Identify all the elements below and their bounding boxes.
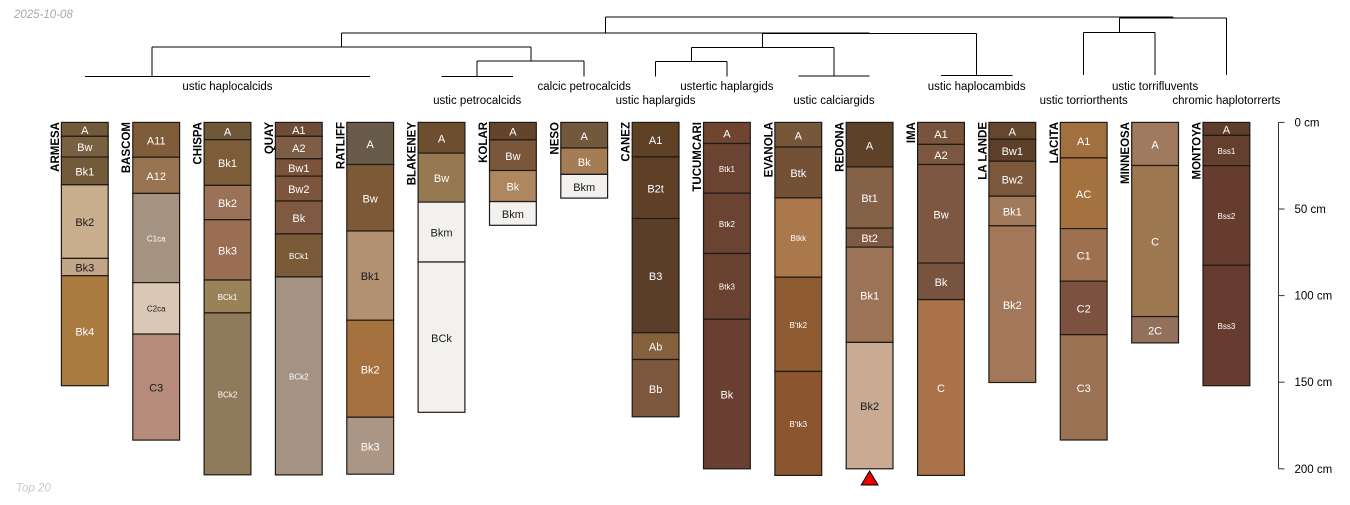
svg-text:calcic petrocalcids: calcic petrocalcids bbox=[538, 81, 632, 93]
svg-text:Bk2: Bk2 bbox=[75, 217, 94, 229]
svg-text:Bk1: Bk1 bbox=[860, 290, 879, 302]
svg-text:Btk: Btk bbox=[790, 168, 806, 180]
svg-text:Bk3: Bk3 bbox=[361, 441, 380, 453]
svg-text:EVANOLA: EVANOLA bbox=[763, 122, 775, 177]
svg-text:MINNEOSA: MINNEOSA bbox=[1120, 122, 1132, 184]
svg-text:200 cm: 200 cm bbox=[1295, 464, 1333, 476]
svg-text:Bt2: Bt2 bbox=[861, 233, 878, 245]
svg-text:Bk1: Bk1 bbox=[361, 271, 380, 283]
svg-text:AC: AC bbox=[1076, 189, 1091, 201]
svg-text:C2: C2 bbox=[1077, 304, 1091, 316]
svg-text:A2: A2 bbox=[292, 143, 305, 155]
svg-text:Bw: Bw bbox=[77, 142, 92, 154]
svg-text:100 cm: 100 cm bbox=[1295, 291, 1333, 303]
svg-text:2025-10-08: 2025-10-08 bbox=[13, 9, 73, 21]
svg-text:Bw2: Bw2 bbox=[288, 184, 309, 196]
svg-text:Bk1: Bk1 bbox=[75, 167, 94, 179]
svg-text:A1: A1 bbox=[1077, 136, 1090, 148]
svg-text:Bk1: Bk1 bbox=[218, 158, 237, 170]
svg-text:BCk2: BCk2 bbox=[289, 372, 309, 381]
svg-text:B3: B3 bbox=[649, 271, 662, 283]
svg-text:Btk1: Btk1 bbox=[719, 165, 736, 174]
svg-text:B'tk2: B'tk2 bbox=[790, 321, 808, 330]
svg-text:Bk3: Bk3 bbox=[75, 263, 94, 275]
svg-text:ustic haplocambids: ustic haplocambids bbox=[928, 81, 1026, 93]
svg-text:A2: A2 bbox=[934, 150, 947, 162]
svg-text:Bk4: Bk4 bbox=[75, 326, 94, 338]
svg-text:0 cm: 0 cm bbox=[1295, 117, 1320, 129]
svg-text:A: A bbox=[581, 131, 589, 143]
svg-text:B'tk3: B'tk3 bbox=[790, 420, 808, 429]
svg-text:BASCOM: BASCOM bbox=[121, 122, 133, 173]
svg-text:MONTOYA: MONTOYA bbox=[1192, 122, 1204, 180]
svg-text:C: C bbox=[1151, 237, 1159, 249]
svg-text:2C: 2C bbox=[1148, 325, 1162, 337]
svg-text:Bw: Bw bbox=[434, 173, 449, 185]
svg-text:Bk: Bk bbox=[506, 182, 519, 194]
svg-text:A: A bbox=[1223, 125, 1231, 137]
svg-text:A11: A11 bbox=[147, 135, 166, 147]
svg-text:C: C bbox=[937, 383, 945, 395]
svg-text:A1: A1 bbox=[292, 125, 305, 137]
svg-text:Btk2: Btk2 bbox=[719, 220, 736, 229]
svg-text:C3: C3 bbox=[1077, 383, 1091, 395]
svg-text:Bk: Bk bbox=[935, 277, 948, 289]
svg-text:REDONA: REDONA bbox=[835, 122, 847, 172]
svg-text:BCk2: BCk2 bbox=[218, 390, 238, 399]
svg-text:B2t: B2t bbox=[647, 183, 664, 195]
svg-text:QUAY: QUAY bbox=[264, 122, 276, 154]
svg-text:Bw: Bw bbox=[505, 151, 520, 163]
svg-text:ustertic haplargids: ustertic haplargids bbox=[680, 81, 774, 93]
svg-text:A1: A1 bbox=[934, 129, 947, 141]
svg-text:50 cm: 50 cm bbox=[1295, 204, 1326, 216]
svg-text:C1: C1 bbox=[1077, 250, 1091, 262]
svg-text:Bk: Bk bbox=[292, 213, 305, 225]
svg-text:A12: A12 bbox=[146, 171, 166, 183]
svg-text:Bss1: Bss1 bbox=[1218, 147, 1236, 156]
svg-text:Top 20: Top 20 bbox=[16, 483, 51, 495]
svg-text:CHISPA: CHISPA bbox=[193, 122, 205, 165]
svg-text:A: A bbox=[866, 140, 874, 152]
svg-text:Bss2: Bss2 bbox=[1218, 212, 1236, 221]
svg-text:Btk3: Btk3 bbox=[719, 283, 736, 292]
svg-text:Bw1: Bw1 bbox=[1002, 146, 1023, 158]
svg-text:BCk1: BCk1 bbox=[218, 293, 238, 302]
svg-text:Bw: Bw bbox=[363, 193, 378, 205]
svg-text:RATLIFF: RATLIFF bbox=[335, 122, 347, 169]
svg-text:ustic torrifluvents: ustic torrifluvents bbox=[1112, 81, 1199, 93]
svg-text:Bb: Bb bbox=[649, 384, 662, 396]
svg-text:Bkm: Bkm bbox=[502, 209, 524, 221]
svg-text:Bk1: Bk1 bbox=[1003, 207, 1022, 219]
svg-text:ustic torriorthents: ustic torriorthents bbox=[1040, 95, 1128, 107]
svg-text:Bk2: Bk2 bbox=[1003, 300, 1022, 312]
svg-text:Bw1: Bw1 bbox=[288, 163, 309, 175]
svg-text:Bw: Bw bbox=[933, 209, 948, 221]
svg-text:ARMESA: ARMESA bbox=[50, 122, 62, 172]
svg-text:IMA: IMA bbox=[906, 122, 918, 143]
svg-text:KOLAR: KOLAR bbox=[478, 121, 490, 163]
svg-text:A: A bbox=[81, 125, 89, 137]
svg-text:BCk: BCk bbox=[431, 333, 452, 345]
svg-text:Bss3: Bss3 bbox=[1218, 322, 1236, 331]
svg-text:ustic haplargids: ustic haplargids bbox=[616, 95, 696, 107]
svg-text:A: A bbox=[1151, 140, 1159, 152]
svg-text:Bk2: Bk2 bbox=[361, 364, 380, 376]
svg-text:C3: C3 bbox=[149, 383, 163, 395]
svg-text:A: A bbox=[224, 127, 232, 139]
svg-text:CANEZ: CANEZ bbox=[621, 122, 633, 162]
svg-text:TUCUMCARI: TUCUMCARI bbox=[692, 122, 704, 192]
svg-text:ustic haplocalcids: ustic haplocalcids bbox=[182, 81, 272, 93]
svg-text:A: A bbox=[1009, 126, 1017, 138]
svg-text:Bk2: Bk2 bbox=[860, 401, 879, 413]
svg-text:Bk3: Bk3 bbox=[218, 246, 237, 258]
svg-text:NESO: NESO bbox=[549, 122, 561, 155]
svg-text:150 cm: 150 cm bbox=[1295, 377, 1333, 389]
svg-text:Bw2: Bw2 bbox=[1002, 174, 1023, 186]
svg-text:Bt1: Bt1 bbox=[861, 193, 878, 205]
svg-text:Bk: Bk bbox=[578, 157, 591, 169]
svg-text:A: A bbox=[438, 133, 446, 145]
svg-text:ustic calciargids: ustic calciargids bbox=[793, 95, 874, 107]
svg-text:BCk1: BCk1 bbox=[289, 252, 309, 261]
svg-text:chromic haplotorrerts: chromic haplotorrerts bbox=[1172, 95, 1280, 107]
svg-text:C2ca: C2ca bbox=[147, 305, 166, 314]
svg-text:Btkk: Btkk bbox=[791, 234, 808, 243]
svg-text:Bk2: Bk2 bbox=[218, 198, 237, 210]
svg-text:A: A bbox=[367, 139, 375, 151]
svg-text:A: A bbox=[723, 129, 731, 141]
svg-text:BLAKENEY: BLAKENEY bbox=[407, 122, 419, 186]
svg-text:Bkm: Bkm bbox=[431, 228, 453, 240]
svg-text:Ab: Ab bbox=[649, 342, 662, 354]
svg-text:A1: A1 bbox=[649, 135, 662, 147]
svg-text:A: A bbox=[795, 130, 803, 142]
svg-text:ustic petrocalcids: ustic petrocalcids bbox=[433, 95, 521, 107]
svg-text:A: A bbox=[509, 127, 517, 139]
svg-text:Bkm: Bkm bbox=[573, 182, 595, 194]
svg-text:LA LANDE: LA LANDE bbox=[977, 122, 989, 180]
svg-text:Bk: Bk bbox=[720, 390, 733, 402]
svg-text:LACITA: LACITA bbox=[1049, 122, 1061, 163]
svg-text:C1ca: C1ca bbox=[147, 234, 166, 243]
